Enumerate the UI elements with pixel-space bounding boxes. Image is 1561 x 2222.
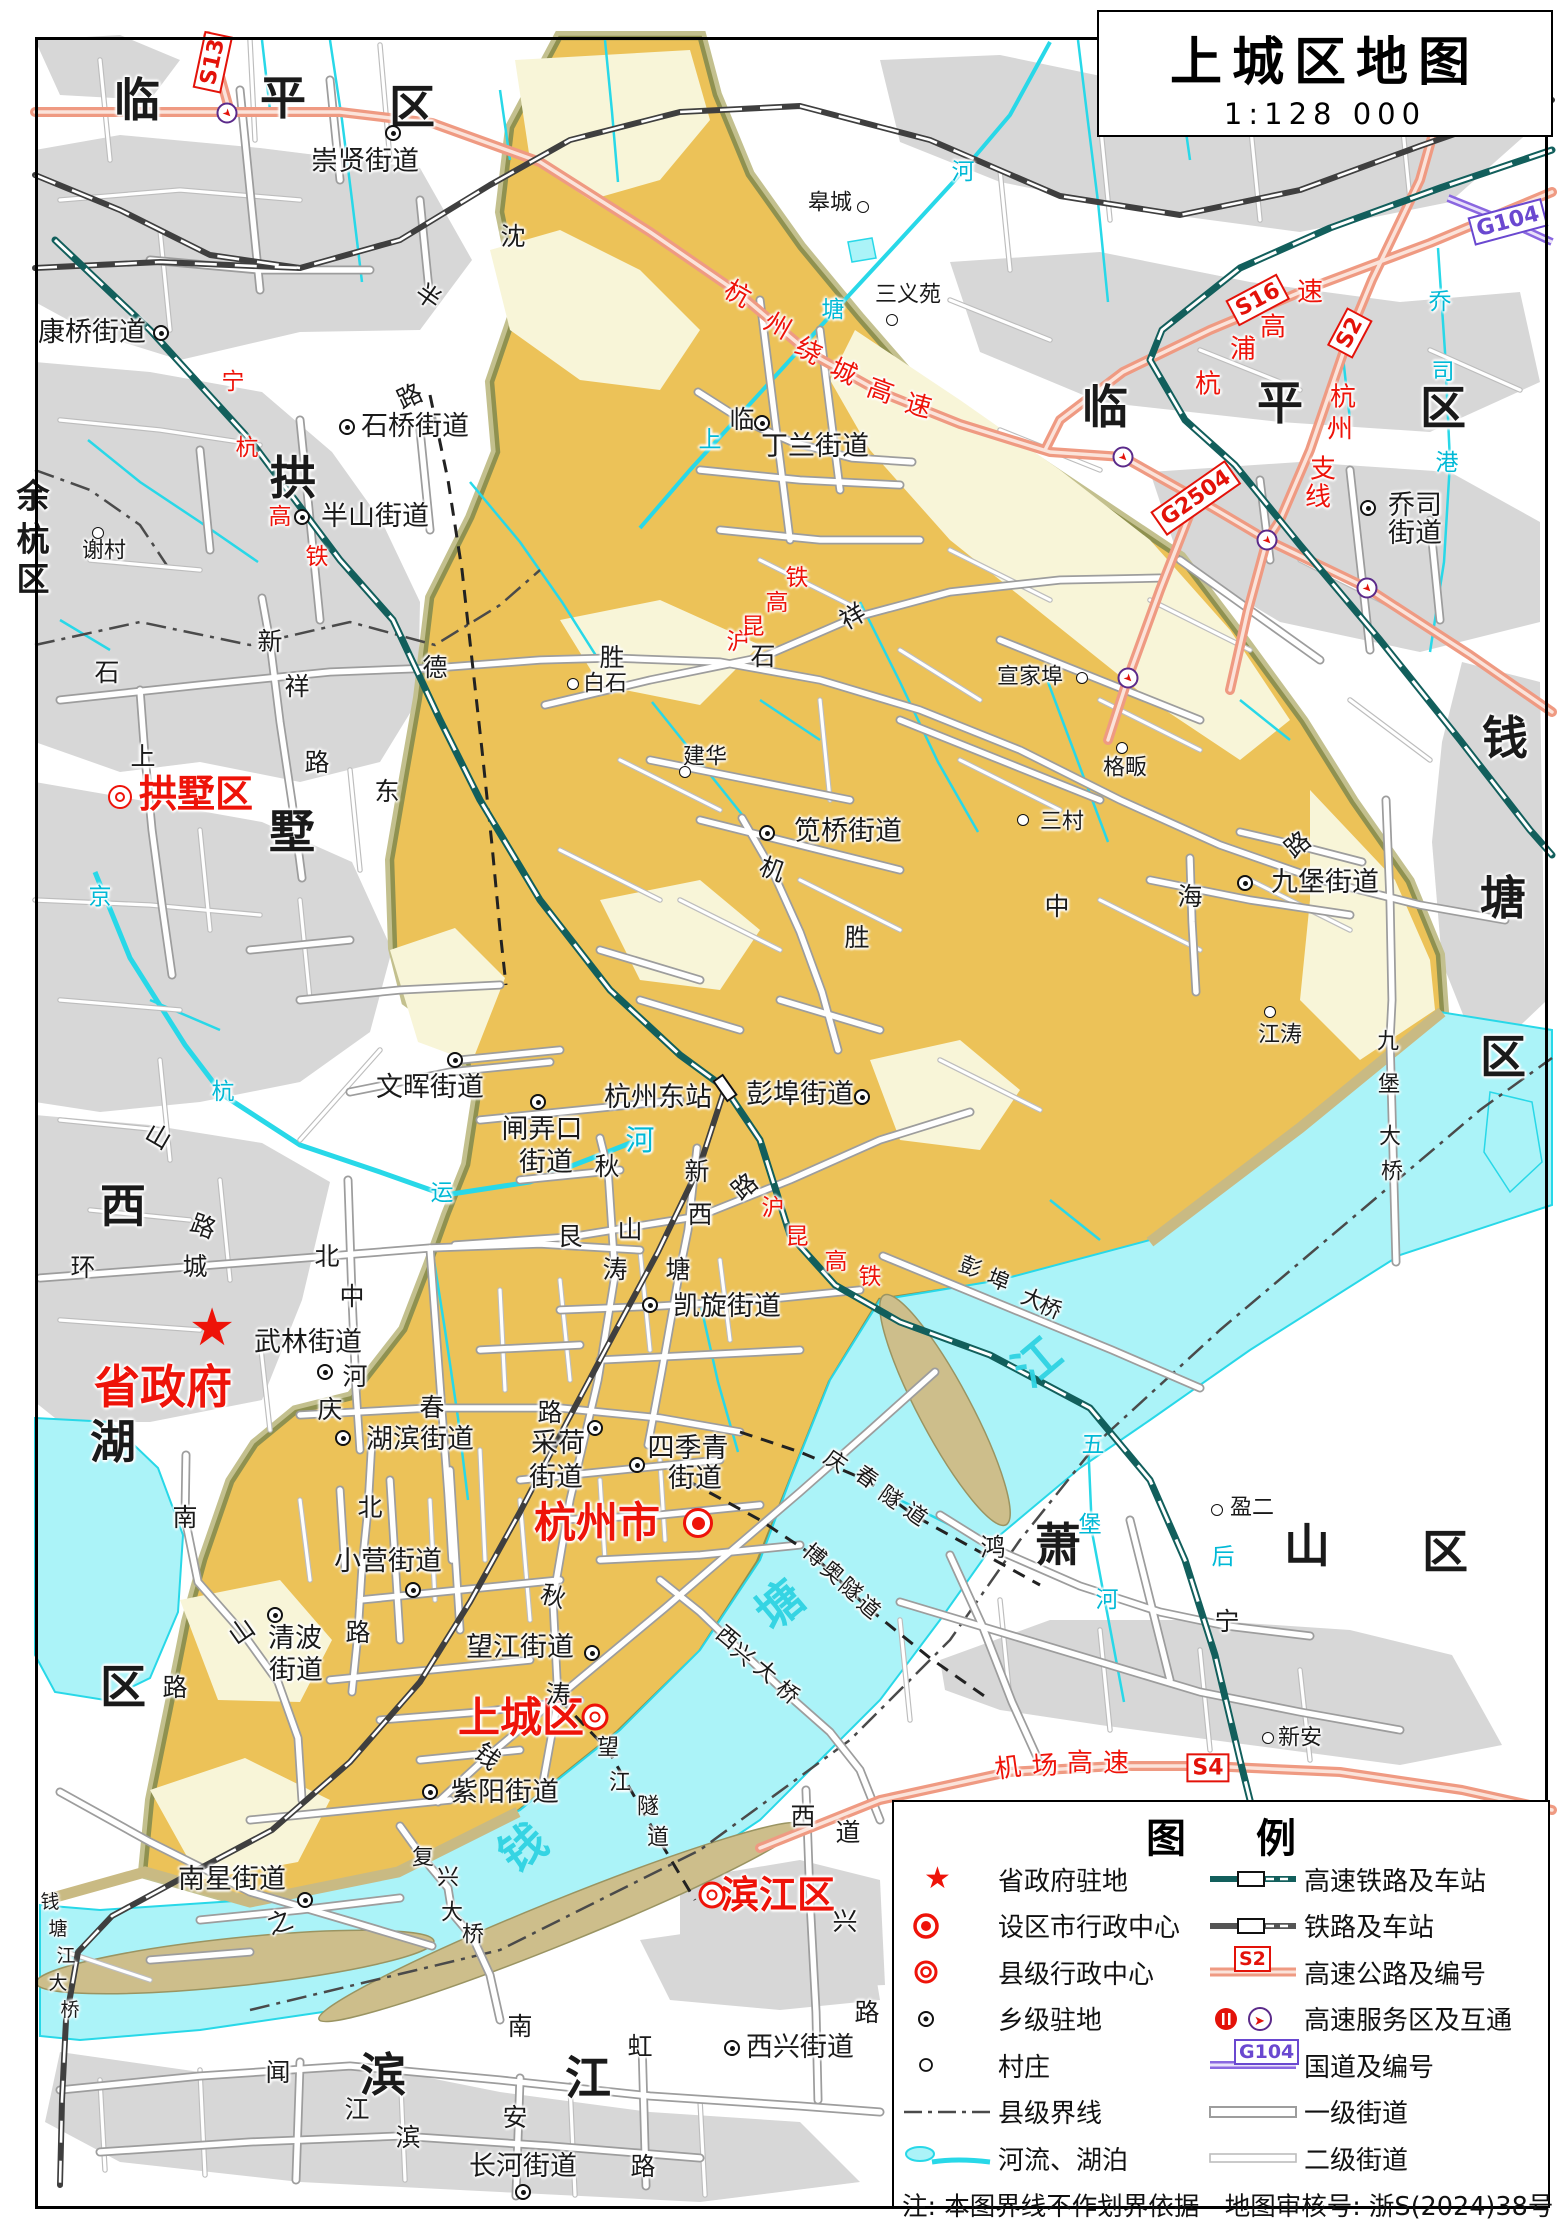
town-marker [629, 1457, 645, 1473]
map-label: 铁 [306, 545, 329, 569]
legend-box: 图例 ★省政府驻地高速铁路及车站设区市行政中心铁路及车站县级行政中心S2高速公路… [892, 1800, 1550, 2208]
map-label: 塘 [822, 298, 845, 322]
map-label: 格畈 [1103, 756, 1147, 779]
legend-label: 铁路及车站 [1304, 1907, 1434, 1944]
map-label: 中 [339, 1284, 364, 1310]
map-scale: 1:128 000 [1099, 97, 1551, 131]
map-label: 墅 [269, 808, 315, 856]
map-label: 闸弄口 [502, 1116, 583, 1144]
map-label: 杭州东站 [604, 1084, 712, 1112]
map-label: 桥 [60, 2001, 79, 2021]
map-label: 笕桥街道 [794, 818, 902, 846]
map-label: 河 [1096, 1588, 1119, 1612]
town-marker [642, 1297, 658, 1313]
provincial-gov-star: ★ [189, 1302, 236, 1354]
map-label: 街道 [1388, 520, 1442, 548]
map-label: 安 [502, 2105, 527, 2131]
map-label: 山 [1284, 1522, 1330, 1570]
map-label: 南 [172, 1505, 197, 1531]
map-label: 清波 [268, 1625, 322, 1653]
town-marker [297, 1892, 313, 1908]
map-label: 区 [1480, 1033, 1526, 1081]
legend-row-town: 乡级驻地 [902, 1996, 1202, 2043]
map-label: 望江街道 [466, 1634, 574, 1662]
legend-label: 县级行政中心 [998, 1954, 1154, 1991]
legend-row-village: 村庄 [902, 2042, 1202, 2089]
legend-row-river: 河流、湖泊 [902, 2135, 1202, 2182]
map-label: 桥 [462, 1923, 484, 1946]
map-label: 道 [647, 1826, 669, 1849]
map-label: 胜 [599, 645, 624, 671]
legend-row-city: 设区市行政中心 [902, 1903, 1202, 1950]
map-label: 中 [1044, 894, 1069, 920]
map-label: 山 [617, 1217, 642, 1243]
map-label: 北 [314, 1244, 339, 1270]
map-label: 湖 [90, 1418, 136, 1466]
town-marker [515, 2184, 531, 2200]
map-label: 街道 [529, 1464, 583, 1492]
legend-row-road2: 二级街道 [1208, 2135, 1538, 2182]
map-label: 九堡街道 [1271, 869, 1379, 897]
map-label: 拱 [270, 454, 316, 502]
legend-label: 河流、湖泊 [998, 2140, 1128, 2177]
legend-row-road1: 一级街道 [1208, 2089, 1538, 2136]
map-label: 宁 [1214, 1609, 1239, 1635]
hsr-icon [1208, 1864, 1304, 1894]
map-label: 江 [344, 2097, 369, 2123]
star-icon: ★ [902, 1864, 998, 1894]
map-label: 临 [729, 407, 754, 433]
route-badge-S4: S4 [1186, 1753, 1229, 1782]
map-label: 西 [790, 1804, 815, 1830]
map-label: 闻 [265, 2060, 290, 2086]
village-icon [902, 2050, 998, 2080]
boundary-icon [902, 2097, 998, 2127]
map-label: 紫阳街道 [451, 1779, 559, 1807]
map-label: 堡 [1378, 1073, 1400, 1096]
map-label: 涛 [602, 1257, 627, 1283]
map-label: 五 [1082, 1433, 1105, 1457]
map-label: 线 [1305, 484, 1331, 511]
map-label: 宁 [222, 370, 245, 394]
map-line [1350, 700, 1430, 760]
map-label: 街道 [519, 1149, 573, 1177]
village-marker [1116, 742, 1128, 754]
map-label: 湖滨街道 [366, 1426, 474, 1454]
legend-label: 县级界线 [998, 2093, 1102, 2130]
map-label: 京 [89, 885, 112, 909]
svg-text:➤: ➤ [1254, 2014, 1265, 2029]
map-label: 采荷 [531, 1430, 585, 1458]
map-label: 艮 [557, 1224, 582, 1250]
county-admin-marker [699, 1882, 726, 1909]
map-label: 长河街道 [469, 2153, 577, 2181]
legend-label: 高速公路及编号 [1304, 1954, 1486, 1991]
village-marker [886, 314, 898, 326]
rail-icon [1208, 1911, 1304, 1941]
hwy-icon: S2 [1208, 1957, 1304, 1987]
town-marker [1237, 875, 1253, 891]
legend-row-boundary: 县级界线 [902, 2089, 1202, 2136]
town-marker [724, 2040, 740, 2056]
legend-grid: ★省政府驻地高速铁路及车站设区市行政中心铁路及车站县级行政中心S2高速公路及编号… [902, 1856, 1540, 2182]
map-label: 滨 [395, 2125, 420, 2151]
map-label: 浦 [1230, 336, 1256, 363]
town-marker [447, 1052, 463, 1068]
map-label: 塘 [665, 1257, 690, 1283]
county-icon [902, 1957, 998, 1987]
map-label: 南 [507, 2014, 532, 2040]
map-label: 新安 [1278, 1726, 1322, 1749]
town-marker [405, 1582, 421, 1598]
map-label: 滨江区 [721, 1876, 835, 1916]
map-label: 杭 [1330, 384, 1356, 411]
map-label: 区 [1422, 1528, 1468, 1576]
title-box: 上城区地图 1:128 000 [1097, 10, 1553, 137]
map-page: 临平区拱墅临平区钱塘区西湖区萧山区滨江余杭区省政府拱墅区杭州市上城区滨江区崇贤街… [0, 0, 1561, 2222]
legend-row-service: ➤高速服务区及互通 [1208, 1996, 1538, 2043]
town-marker [385, 125, 401, 141]
map-label: 街道 [668, 1465, 722, 1493]
legend-row-rail: 铁路及车站 [1208, 1903, 1538, 1950]
map-label: 崇贤街道 [311, 148, 419, 176]
map-label: 武林街道 [254, 1329, 362, 1357]
map-label: 白石 [583, 672, 627, 695]
map-label: 滨 [360, 2051, 406, 2099]
map-label: 九 [1377, 1030, 1399, 1053]
map-label: 海 [1177, 884, 1202, 910]
map-label: 省政府 [94, 1363, 232, 1411]
map-label: 西 [687, 1202, 712, 1228]
map-label: 速 [1297, 279, 1323, 306]
county-admin-marker [582, 1704, 609, 1731]
map-label: 乔司 [1388, 492, 1442, 520]
town-marker [153, 325, 169, 341]
pond [848, 238, 876, 262]
map-label: 区 [1420, 384, 1466, 432]
map-label: 东 [374, 779, 399, 805]
map-label: 司 [1432, 360, 1455, 384]
legend-label: 二级街道 [1304, 2140, 1408, 2177]
map-label: 祥 [284, 674, 309, 700]
map-label: 西 [100, 1182, 146, 1230]
map-label: 余 [17, 480, 50, 515]
map-label: 谢村 [82, 539, 126, 562]
town-marker [339, 419, 355, 435]
map-label: 路 [537, 1400, 562, 1426]
legend-label: 高速服务区及互通 [1304, 2000, 1512, 2037]
map-label: 临 [114, 76, 160, 124]
map-label: 石 [750, 644, 775, 670]
map-label: 江 [609, 1771, 631, 1794]
legend-title: 图例 [902, 1806, 1540, 1856]
map-label: 复 [412, 1846, 434, 1869]
map-label: 望 [597, 1736, 619, 1759]
map-label: 高 [1260, 314, 1286, 341]
map-line [1000, 170, 1010, 270]
village-marker [1264, 1006, 1276, 1018]
legend-row-hwy: S2高速公路及编号 [1208, 1949, 1538, 1996]
map-label: 上 [130, 744, 155, 770]
map-label: 沈 [500, 224, 525, 250]
map-label: 城 [182, 1254, 207, 1280]
town-marker [854, 1089, 870, 1105]
map-label: 拱墅区 [139, 775, 253, 815]
map-label: 塘 [1480, 874, 1526, 922]
map-label: 路 [304, 750, 329, 776]
map-label: 杭 [1195, 371, 1221, 398]
map-label: 高 [766, 591, 789, 615]
map-label: 皋城 [808, 191, 852, 214]
town-marker [584, 1645, 600, 1661]
legend-label: 乡级驻地 [998, 2000, 1102, 2037]
city-icon [902, 1911, 998, 1941]
legend-row-hsr: 高速铁路及车站 [1208, 1856, 1538, 1903]
legend-label: 省政府驻地 [998, 1861, 1128, 1898]
map-label: 塘 [48, 1920, 67, 1940]
town-marker [422, 1784, 438, 1800]
map-label: 虹 [627, 2034, 652, 2060]
village-marker [1017, 814, 1029, 826]
village-marker [1076, 672, 1088, 684]
map-label: 大 [48, 1974, 67, 1994]
map-label: 新 [257, 629, 282, 655]
map-label: 环 [70, 1255, 95, 1281]
village-marker [857, 201, 869, 213]
map-label: 高 [825, 1250, 848, 1274]
map-label: 道 [835, 1820, 860, 1846]
map-label: 场 [1031, 1752, 1059, 1781]
interchange-marker: ➤ [1118, 668, 1139, 689]
national-icon: G104 [1208, 2050, 1304, 2080]
map-label: 杭 [17, 523, 50, 558]
legend-row-star: ★省政府驻地 [902, 1856, 1202, 1903]
map-label: 机 [993, 1754, 1023, 1785]
map-label: 河 [952, 160, 975, 184]
village-marker [92, 527, 104, 539]
town-marker [335, 1430, 351, 1446]
map-label: 杭 [236, 436, 259, 460]
map-label: 南星街道 [178, 1866, 286, 1894]
map-label: 涛 [545, 1682, 570, 1708]
map-label: 大 [441, 1901, 463, 1924]
urban-block [35, 782, 392, 1112]
map-label: 半山街道 [321, 503, 429, 531]
town-marker [759, 825, 775, 841]
map-label: 高 [1067, 1750, 1093, 1777]
town-marker [1360, 500, 1376, 516]
map-label: 河 [625, 1125, 654, 1155]
river-icon [902, 2143, 998, 2173]
map-label: 兴 [437, 1866, 459, 1889]
service-icon: ➤ [1208, 2004, 1304, 2034]
map-label: 昆 [786, 1225, 809, 1249]
map-label: 州 [1327, 416, 1353, 443]
legend-row-county: 县级行政中心 [902, 1949, 1202, 1996]
map-label: 路 [345, 1620, 370, 1646]
map-label: 路 [162, 1675, 187, 1701]
map-label: 后 [1212, 1545, 1235, 1569]
map-label: 鸿 [980, 1535, 1005, 1561]
town-marker [294, 509, 310, 525]
city-admin-marker [683, 1508, 713, 1538]
map-label: 文晖街道 [376, 1074, 484, 1102]
map-label: 春 [419, 1395, 444, 1421]
map-label: 三义苑 [875, 283, 941, 306]
legend-row-national: G104国道及编号 [1208, 2042, 1538, 2089]
road2-icon [1208, 2143, 1304, 2173]
legend-label: 设区市行政中心 [998, 1907, 1180, 1944]
map-title: 上城区地图 [1099, 20, 1551, 95]
map-label: 兴 [832, 1909, 857, 1935]
map-label: 杭 [212, 1080, 235, 1104]
interchange-marker: ➤ [1257, 530, 1278, 551]
map-label: 街道 [269, 1657, 323, 1685]
village-marker [679, 766, 691, 778]
legend-label: 村庄 [998, 2047, 1050, 2084]
map-label: 昆 [742, 615, 765, 639]
map-label: 西兴街道 [746, 2034, 854, 2062]
village-marker [1262, 1732, 1274, 1744]
map-label: 石 [94, 660, 119, 686]
map-label: 小营街道 [334, 1548, 442, 1576]
map-label: 大 [1379, 1125, 1401, 1148]
map-label: 胜 [844, 925, 869, 951]
map-label: 盈二 [1230, 1496, 1274, 1519]
map-label: 堡 [1079, 1513, 1102, 1537]
map-label: 港 [1436, 451, 1459, 475]
map-label: 沪 [762, 1196, 785, 1220]
map-label: 区 [100, 1663, 146, 1711]
map-label: 隧 [637, 1795, 659, 1818]
map-label: 速 [1103, 1750, 1129, 1777]
map-label: 丁兰街道 [761, 433, 869, 461]
road1-icon [1208, 2097, 1304, 2127]
map-label: 江 [565, 2054, 611, 2102]
map-label: 庆 [317, 1397, 342, 1423]
map-label: 江 [56, 1947, 75, 1967]
map-label: 康桥街道 [38, 319, 146, 347]
map-label: 萧 [1035, 1521, 1081, 1569]
map-label: 秋 [594, 1154, 619, 1180]
svg-text:★: ★ [924, 1864, 951, 1894]
map-label: 上 [699, 428, 722, 452]
interchange-marker: ➤ [1357, 578, 1378, 599]
town-marker [754, 415, 770, 431]
village-marker [567, 678, 579, 690]
map-label: 杭州市 [534, 1501, 660, 1545]
map-label: 三村 [1040, 810, 1084, 833]
map-label: 高 [269, 505, 292, 529]
map-label: 桥 [1381, 1160, 1403, 1183]
map-label: 区 [17, 563, 50, 598]
legend-note: 注: 本图界线不作划界依据 地图审核号: 浙S(2024)38号 [902, 2186, 1540, 2222]
map-label: 路 [854, 2000, 879, 2026]
map-label: 支 [1310, 456, 1336, 483]
legend-badge-G104: G104 [1234, 2039, 1299, 2065]
map-label: 德 [422, 655, 447, 681]
map-label: 平 [260, 74, 306, 122]
interchange-marker: ➤ [1113, 447, 1134, 468]
town-marker [587, 1420, 603, 1436]
county-admin-marker [108, 785, 132, 809]
map-label: 凯旋街道 [673, 1293, 781, 1321]
town-marker [267, 1607, 283, 1623]
town-marker [530, 1094, 546, 1110]
map-label: 四季青 [648, 1435, 729, 1463]
village-marker [1211, 1504, 1223, 1516]
map-label: 宣家埠 [997, 665, 1063, 688]
map-label: 运 [431, 1181, 454, 1205]
map-label: 建华 [683, 745, 727, 768]
map-line [350, 770, 360, 870]
map-label: 石桥街道 [361, 413, 469, 441]
map-label: 新 [684, 1159, 709, 1185]
legend-label: 国道及编号 [1304, 2047, 1434, 2084]
town-icon [902, 2004, 998, 2034]
map-label: 临 [1082, 383, 1128, 431]
map-label: 钱 [1482, 714, 1528, 762]
map-label: 钱 [40, 1893, 59, 1913]
legend-label: 一级街道 [1304, 2093, 1408, 2130]
map-label: 平 [1257, 379, 1303, 427]
map-label: 乔 [1429, 290, 1452, 314]
map-label: 铁 [859, 1265, 882, 1289]
legend-badge-S2: S2 [1234, 1946, 1271, 1972]
map-label: 彭埠街道 [746, 1081, 854, 1109]
legend-label: 高速铁路及车站 [1304, 1861, 1486, 1898]
map-label: 铁 [786, 566, 809, 590]
town-marker [317, 1364, 333, 1380]
map-label: 路 [630, 2154, 655, 2180]
interchange-marker: ➤ [217, 103, 238, 124]
map-label: 北 [357, 1495, 382, 1521]
map-label: 江涛 [1258, 1023, 1302, 1046]
map-label: 区 [389, 83, 435, 131]
map-label: 河 [342, 1364, 367, 1390]
